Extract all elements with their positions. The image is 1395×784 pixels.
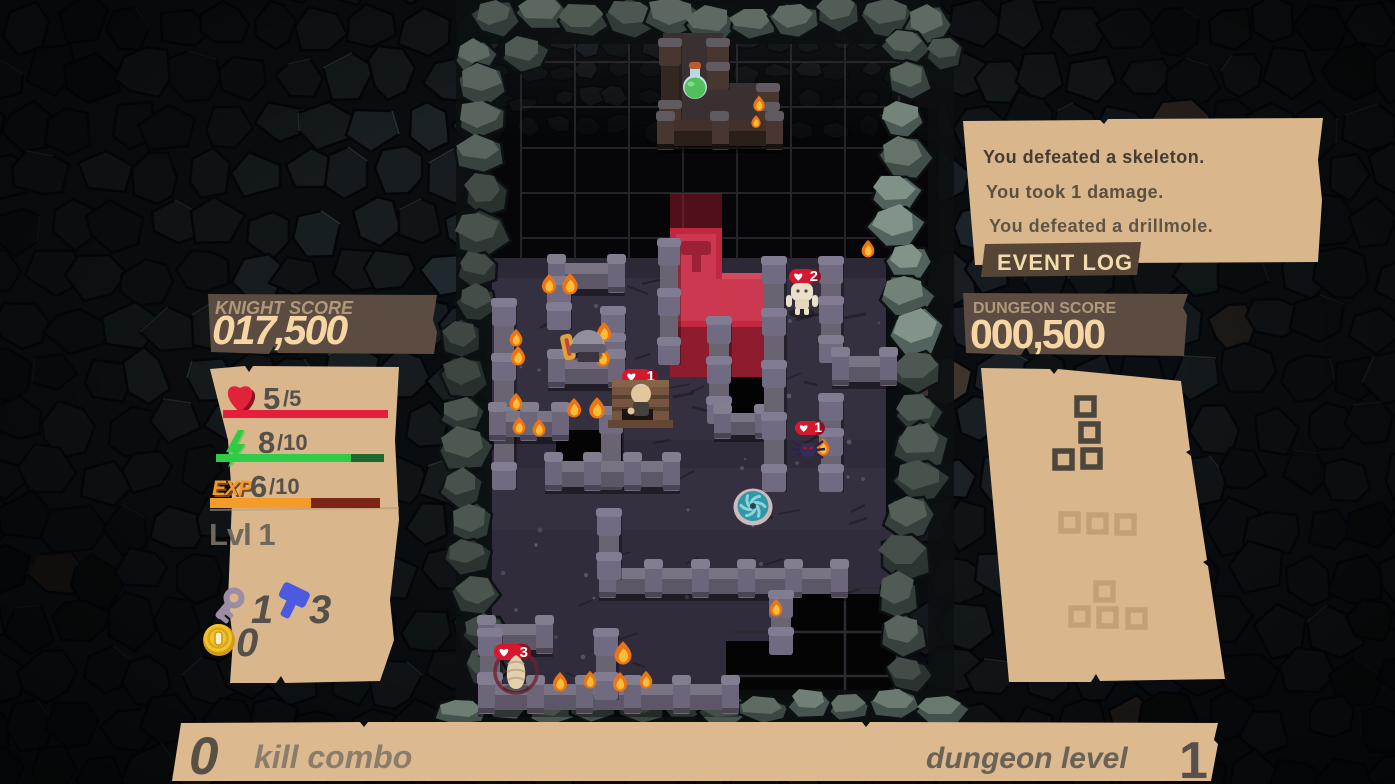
svg-text:1: 1 (1179, 732, 1208, 784)
svg-text:You defeated a skeleton.: You defeated a skeleton. (983, 147, 1205, 167)
svg-text:0: 0 (236, 621, 258, 665)
svg-text:kill combo: kill combo (254, 739, 412, 775)
svg-text:You took 1 damage.: You took 1 damage. (986, 182, 1164, 202)
svg-text:EVENT LOG: EVENT LOG (997, 250, 1133, 275)
svg-text:/10: /10 (269, 474, 300, 499)
svg-text:You defeated a drillmole.: You defeated a drillmole. (989, 216, 1213, 236)
svg-text:/5: /5 (283, 386, 301, 411)
svg-text:/10: /10 (277, 430, 308, 455)
svg-text:0: 0 (189, 727, 218, 784)
svg-text:EXP: EXP (212, 477, 253, 500)
svg-text:000,500: 000,500 (970, 311, 1105, 357)
svg-text:3: 3 (309, 588, 331, 632)
svg-text:017,500: 017,500 (212, 307, 348, 353)
svg-text:Lvl 1: Lvl 1 (209, 517, 275, 552)
svg-text:dungeon level: dungeon level (926, 742, 1128, 775)
